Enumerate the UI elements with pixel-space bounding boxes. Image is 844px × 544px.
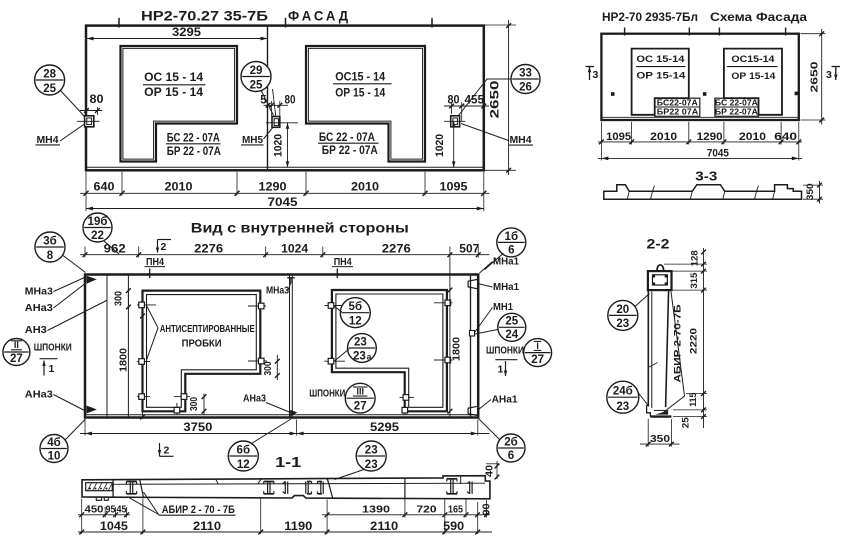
svg-text:АБИР 2 - 70 - 7Б: АБИР 2 - 70 - 7Б — [162, 504, 235, 516]
svg-text:80: 80 — [448, 95, 460, 107]
svg-text:3295: 3295 — [172, 25, 201, 39]
svg-text:2010: 2010 — [351, 179, 379, 193]
svg-text:Схема Фасада: Схема Фасада — [710, 10, 807, 24]
svg-text:95: 95 — [106, 504, 116, 516]
svg-text:2650: 2650 — [810, 61, 821, 93]
svg-text:3-3: 3-3 — [695, 169, 717, 184]
svg-text:ФАСАД: ФАСАД — [288, 9, 351, 24]
svg-text:МНа3: МНа3 — [25, 286, 53, 298]
svg-text:АНа1: АНа1 — [492, 394, 518, 406]
svg-text:115: 115 — [688, 393, 698, 407]
svg-text:2: 2 — [161, 241, 167, 253]
svg-text:1045: 1045 — [100, 521, 129, 533]
svg-text:2276: 2276 — [194, 241, 223, 255]
svg-text:АН3: АН3 — [25, 324, 47, 336]
svg-text:12: 12 — [237, 459, 250, 471]
svg-text:МНа1: МНа1 — [493, 256, 519, 268]
svg-text:2-2: 2-2 — [647, 237, 670, 252]
svg-text:2010: 2010 — [739, 131, 766, 143]
svg-text:2110: 2110 — [370, 521, 398, 533]
svg-text:1095: 1095 — [440, 179, 468, 193]
svg-text:2276: 2276 — [382, 241, 411, 255]
svg-text:НР2-70 2935-7Бл: НР2-70 2935-7Бл — [602, 10, 698, 24]
svg-text:АНа3: АНа3 — [243, 393, 266, 405]
svg-text:24б: 24б — [613, 386, 633, 398]
svg-text:МНа1: МНа1 — [493, 281, 519, 293]
svg-text:165: 165 — [448, 504, 463, 516]
svg-text:ШПОНКИ: ШПОНКИ — [486, 345, 524, 357]
svg-text:720: 720 — [417, 504, 437, 516]
svg-text:ОС15 - 14: ОС15 - 14 — [335, 70, 385, 84]
svg-text:ОР 15 - 14: ОР 15 - 14 — [144, 85, 203, 99]
svg-text:1390: 1390 — [362, 504, 390, 516]
svg-text:12: 12 — [349, 316, 362, 328]
svg-text:БР22 07А: БР22 07А — [657, 107, 699, 117]
svg-text:23: 23 — [365, 459, 378, 471]
svg-text:1: 1 — [498, 364, 504, 376]
svg-text:3750: 3750 — [183, 420, 212, 434]
svg-text:1020: 1020 — [434, 134, 446, 157]
svg-text:300: 300 — [263, 361, 274, 375]
svg-text:1290: 1290 — [697, 131, 723, 143]
svg-text:МНа3: МНа3 — [266, 285, 289, 297]
svg-text:АНТИСЕПТИРОВАННЫЕ: АНТИСЕПТИРОВАННЫЕ — [160, 323, 255, 335]
svg-text:300: 300 — [114, 291, 125, 306]
svg-text:80: 80 — [285, 94, 296, 106]
svg-text:3б: 3б — [43, 235, 57, 247]
svg-text:26: 26 — [519, 81, 532, 93]
svg-text:2010: 2010 — [650, 131, 677, 143]
svg-text:20: 20 — [616, 304, 629, 316]
svg-text:5б: 5б — [349, 301, 363, 313]
svg-text:590: 590 — [443, 521, 464, 533]
svg-text:Вид с внутренней стороны: Вид с внутренней стороны — [191, 220, 409, 235]
svg-text:3: 3 — [826, 69, 832, 81]
svg-text:7045: 7045 — [707, 148, 729, 160]
svg-text:962: 962 — [104, 241, 126, 255]
svg-text:640: 640 — [94, 179, 115, 193]
svg-text:24: 24 — [505, 329, 518, 341]
svg-text:5295: 5295 — [370, 420, 399, 434]
svg-text:40: 40 — [485, 465, 496, 477]
svg-text:I: I — [536, 341, 539, 351]
svg-text:23: 23 — [365, 444, 378, 456]
svg-text:ПРОБКИ: ПРОБКИ — [182, 338, 222, 350]
svg-text:19б: 19б — [88, 216, 108, 228]
svg-text:1020: 1020 — [273, 134, 285, 157]
svg-text:640: 640 — [774, 131, 797, 143]
svg-text:8: 8 — [47, 250, 54, 262]
svg-text:4б: 4б — [47, 437, 61, 449]
svg-text:25: 25 — [681, 417, 691, 428]
svg-text:II: II — [14, 340, 19, 350]
svg-text:ОР 15 - 14: ОР 15 - 14 — [335, 86, 385, 100]
svg-text:315: 315 — [689, 273, 699, 289]
svg-text:2220: 2220 — [689, 328, 700, 354]
svg-text:1-1: 1-1 — [275, 454, 301, 471]
svg-text:10: 10 — [48, 450, 61, 462]
svg-text:АБИР 2-70-7Б: АБИР 2-70-7Б — [673, 304, 684, 382]
svg-text:МН1: МН1 — [493, 301, 513, 313]
svg-text:29: 29 — [250, 65, 263, 77]
svg-text:6б: 6б — [237, 444, 251, 456]
svg-text:450: 450 — [85, 504, 104, 516]
svg-text:2650: 2650 — [490, 81, 502, 119]
svg-text:АНа3: АНа3 — [25, 302, 53, 314]
svg-text:ШПОНКИ: ШПОНКИ — [309, 387, 345, 399]
svg-text:ОР 15-14: ОР 15-14 — [731, 71, 776, 82]
svg-text:1024: 1024 — [281, 241, 308, 255]
svg-text:27: 27 — [10, 353, 23, 365]
svg-text:АНа3: АНа3 — [25, 389, 53, 401]
svg-text:2110: 2110 — [193, 521, 221, 533]
svg-text:ОС15-14: ОС15-14 — [731, 54, 775, 65]
svg-text:7045: 7045 — [268, 195, 298, 209]
svg-text:1: 1 — [49, 363, 55, 375]
svg-text:350: 350 — [650, 434, 671, 445]
svg-text:ОР 15-14: ОР 15-14 — [636, 71, 686, 82]
svg-text:300: 300 — [189, 397, 200, 411]
svg-text:23: 23 — [616, 318, 629, 330]
svg-text:128: 128 — [690, 250, 700, 266]
svg-text:2010: 2010 — [165, 179, 193, 193]
svg-text:а: а — [367, 352, 372, 362]
svg-text:1800: 1800 — [118, 348, 130, 372]
svg-text:2б: 2б — [504, 436, 518, 448]
svg-text:80: 80 — [90, 94, 104, 106]
svg-text:507: 507 — [459, 241, 479, 255]
svg-text:28: 28 — [43, 68, 56, 80]
svg-text:БР 22 - 07А: БР 22 - 07А — [167, 144, 221, 158]
svg-text:25: 25 — [43, 83, 56, 95]
svg-text:НР2-70.27 35-7Б: НР2-70.27 35-7Б — [141, 9, 268, 24]
svg-text:23: 23 — [353, 350, 366, 362]
svg-text:БС 22 - 07А: БС 22 - 07А — [319, 130, 375, 144]
svg-text:БР 22 - 07А: БР 22 - 07А — [322, 143, 378, 157]
svg-text:БР 22-07А: БР 22-07А — [715, 107, 758, 117]
svg-text:27: 27 — [354, 401, 367, 413]
svg-text:1б: 1б — [505, 231, 519, 243]
svg-text:3: 3 — [593, 69, 599, 81]
svg-text:III: III — [356, 386, 364, 396]
svg-text:27: 27 — [531, 354, 544, 366]
svg-text:6: 6 — [508, 450, 514, 462]
svg-text:25: 25 — [250, 79, 263, 91]
svg-text:ОС 15 - 14: ОС 15 - 14 — [144, 70, 203, 84]
svg-text:25: 25 — [505, 316, 518, 328]
svg-text:350: 350 — [805, 183, 816, 200]
svg-text:1095: 1095 — [606, 131, 631, 143]
svg-text:23: 23 — [354, 336, 367, 348]
svg-text:ОС 15-14: ОС 15-14 — [636, 54, 685, 65]
svg-text:1290: 1290 — [259, 179, 287, 193]
svg-text:23: 23 — [616, 401, 629, 413]
svg-text:ШПОНКИ: ШПОНКИ — [34, 342, 72, 354]
svg-text:45: 45 — [117, 504, 127, 516]
svg-text:1800: 1800 — [451, 337, 463, 361]
svg-text:33: 33 — [519, 67, 532, 79]
svg-text:1190: 1190 — [284, 521, 312, 533]
svg-text:2: 2 — [164, 445, 170, 457]
svg-text:22: 22 — [91, 230, 104, 242]
svg-text:БС 22 - 07А: БС 22 - 07А — [167, 131, 220, 145]
